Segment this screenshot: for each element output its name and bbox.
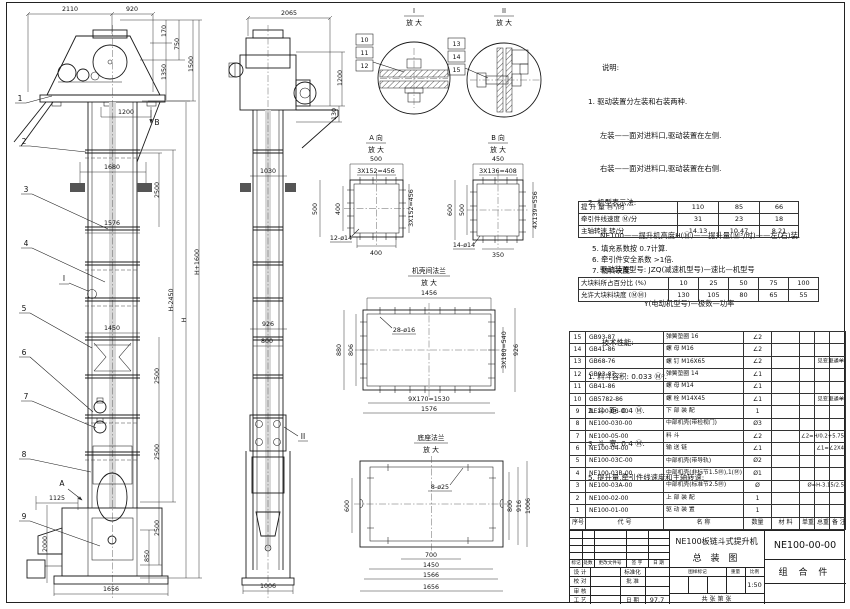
dim-a-holes: 12-ø14 — [330, 235, 352, 242]
parts-row: 1NE100-01-00驱 动 装 置1 — [570, 505, 846, 517]
detail-II: II 放 大 13 14 15 — [448, 7, 541, 117]
note-line: 6. 牵引件安全系数 >1倍. — [592, 254, 832, 265]
sheet-count: 共 张 第 张 — [669, 593, 764, 604]
dim-170: 170 — [161, 25, 168, 37]
dim-f-1456: 1456 — [421, 290, 437, 297]
parts-row: 12GB93-87弹簧垫圈 14∠1 — [570, 369, 846, 381]
drawing-number: NE100-00-00 — [764, 531, 846, 559]
dim-f-1530: 9X170=1530 — [408, 396, 450, 403]
col-qty: 数量 — [744, 517, 772, 529]
dim-1576: 1576 — [104, 220, 120, 227]
dim-f-806: 806 — [348, 344, 355, 356]
dim-b-350-bottom: 350 — [492, 252, 504, 259]
dim-g-1656: 1656 — [423, 584, 439, 591]
balloon-8: 8 — [22, 450, 27, 459]
balloon-10: 10 — [360, 37, 368, 44]
dim-1500: 1500 — [188, 56, 195, 72]
dim-g-holes: 8-ø25 — [431, 484, 449, 491]
col-material: 材 料 — [772, 517, 800, 529]
dim-926-side: 926 — [262, 321, 274, 328]
table-row: 主轴转速 转/分 14.13 10.47 8.21 — [579, 226, 799, 238]
dim-h-minus-2450: H-2450 — [168, 288, 175, 311]
drawing-sheet: 2110 920 170 750 1350 1500 1200 1680 250… — [0, 0, 850, 609]
balloon-1: 1 — [18, 94, 23, 103]
dim-b-holes: 14-ø14 — [453, 242, 475, 249]
stamp-label: 图样标记 — [669, 567, 726, 576]
table-row: 允许大块料块度 (ⓂⓂ) 130 105 80 65 55 — [579, 290, 819, 302]
drawing-subtitle: 总 装 图 — [669, 549, 764, 565]
dim-2500-a: 2500 — [154, 182, 161, 198]
parts-row: 3NE100-03A-00中部机壳(标准节2.5Ⓜ)ØØ=H-3.15/2.5 — [570, 480, 846, 492]
dim-130: 130 — [331, 108, 338, 120]
dim-2500-c: 2500 — [154, 444, 161, 460]
rev-col-docno: 更改文件号 — [594, 559, 626, 567]
drawing-title: NE100板链斗式提升机 — [669, 533, 764, 549]
sig-audit: 审 核 — [570, 586, 590, 595]
note-line: 1. 驱动装置分左装和右装两种. — [588, 96, 844, 107]
parts-row: 6NE100-04-00输 送 链∠1∠1=∠2X4 — [570, 443, 846, 455]
detail-marker-I: I — [63, 274, 65, 283]
sig-approve: 批 准 — [620, 576, 645, 586]
view-A-label: A 向 — [369, 133, 383, 142]
casing-flange-view: 机壳间法兰 放 大 1456 28-ø16 880 806 3X180=540 … — [336, 266, 520, 413]
balloon-12: 12 — [360, 63, 368, 70]
dim-g-916: 916 — [516, 500, 523, 512]
balloon-13: 13 — [452, 41, 460, 48]
base-flange-sublabel: 放 大 — [423, 445, 439, 454]
col-name: 名 称 — [664, 517, 744, 529]
balloon-11: 11 — [360, 50, 368, 57]
rev-col-count: 处数 — [582, 559, 594, 567]
balloon-3: 3 — [24, 185, 29, 194]
dim-f-540: 3X180=540 — [501, 331, 508, 369]
dim-b-556-right: 4X139=556 — [532, 191, 539, 229]
note-line: 7. 物料块度: — [592, 265, 832, 276]
dim-b-600-left: 600 — [447, 204, 454, 216]
dim-1006: 1006 — [260, 583, 276, 590]
casing-flange-sublabel: 放 大 — [421, 278, 437, 287]
view-B-label: B 向 — [491, 133, 505, 142]
dim-a-400-bottom: 400 — [370, 250, 382, 257]
balloon-5: 5 — [22, 304, 27, 313]
base-flange-label: 底座法兰 — [417, 433, 444, 442]
rev-col-sign: 签 字 — [626, 559, 648, 567]
dim-750: 750 — [174, 38, 181, 50]
dim-2500-b: 2500 — [154, 368, 161, 384]
dim-1125: 1125 — [49, 495, 65, 502]
dim-1200-side: 1200 — [337, 70, 344, 86]
parts-row: 15GB93-87弹簧垫圈 16∠2 — [570, 332, 846, 344]
dim-h-plus-1600: H+1600 — [194, 249, 201, 275]
sig-standardization: 标准化 — [620, 567, 645, 576]
balloon-9: 9 — [22, 512, 27, 521]
parts-row: 13GB68-76螺 钉 M16X65∠2见变更通单 — [570, 356, 846, 368]
view-marker-B: B — [154, 118, 159, 127]
parts-row: 9NE100-06-00下 部 装 配1 — [570, 406, 846, 418]
detail-I-sublabel: 放 大 — [406, 18, 422, 27]
detail-marker-II: II — [301, 432, 305, 441]
dim-g-600: 600 — [344, 500, 351, 512]
table-row: 大块料所占百分比 (%) 10 25 50 75 100 — [579, 278, 819, 290]
detail-I-label: I — [413, 7, 415, 15]
dim-g-1566: 1566 — [423, 572, 439, 579]
lump-size-table: 大块料所占百分比 (%) 10 25 50 75 100 允许大块料块度 (ⓂⓂ… — [578, 277, 819, 302]
view-A-sublabel: 放 大 — [368, 145, 384, 154]
dim-800-side: 800 — [261, 338, 273, 345]
col-remark: 备 注 — [830, 517, 846, 529]
col-code: 代 号 — [586, 517, 664, 529]
side-view-dimensions: 2065 1200 130 1030 926 800 1006 II — [243, 10, 345, 594]
sig-design: 设 计 — [570, 567, 590, 576]
parts-row: 4NE100-03B-00中部机壳(非标节1.5Ⓜ),1(Ⓜ)Ø1 — [570, 468, 846, 480]
side-view — [229, 25, 338, 598]
part-class: 组 合 件 — [764, 559, 846, 583]
dim-2065: 2065 — [281, 10, 297, 17]
dim-1680: 1680 — [104, 164, 120, 171]
rev-col-date: 日 期 — [648, 559, 669, 567]
dim-b-450-top: 450 — [492, 156, 504, 163]
rev-col-mark: 标记 — [570, 559, 582, 567]
parts-row: 8NE100-030-00中部机壳(带检视门)Ø3 — [570, 418, 846, 430]
dim-920: 920 — [126, 6, 138, 13]
dim-1656: 1656 — [103, 586, 119, 593]
dim-f-1576: 1576 — [421, 406, 437, 413]
dim-1200: 1200 — [118, 109, 134, 116]
casing-flange-label: 机壳间法兰 — [412, 266, 446, 275]
detail-I: I 放 大 10 11 12 — [356, 7, 450, 114]
dim-f-880: 880 — [336, 344, 343, 356]
dim-1450: 1450 — [104, 325, 120, 332]
dim-2110: 2110 — [62, 6, 78, 13]
dim-a-456-right: 3X152=456 — [408, 189, 415, 227]
balloon-14: 14 — [452, 54, 460, 61]
view-B-sublabel: 放 大 — [490, 145, 506, 154]
note-line: 5. 填充系数按 0.7计算. — [592, 243, 832, 254]
dim-f-holes: 28-ø16 — [393, 327, 415, 334]
dim-g-700: 700 — [425, 552, 437, 559]
dim-1350: 1350 — [161, 64, 168, 80]
dim-a-400-left: 400 — [335, 203, 342, 215]
parts-row: 2NE100-02-00上 部 装 配1 — [570, 492, 846, 504]
lift-capacity-table: 提 升 量 Ⓜ³/时 110 85 66 牵引件线速度 Ⓜ/分 31 23 18… — [578, 201, 799, 238]
sig-date-label: 日 期 — [620, 595, 645, 604]
dim-2500-d: 2500 — [154, 520, 161, 536]
parts-list: 15GB93-87弹簧垫圈 16∠2 14GB41-86螺 母 M16∠2 13… — [569, 331, 846, 530]
detail-II-sublabel: 放 大 — [496, 18, 512, 27]
balloon-4: 4 — [24, 239, 29, 248]
base-flange-view: 底座法兰 放 大 8-ø25 600 800 916 1006 700 1450… — [344, 433, 532, 591]
dim-2000: 2000 — [42, 536, 49, 552]
parts-row: 14GB41-86螺 母 M16∠2 — [570, 344, 846, 356]
col-total-weight: 总重 — [815, 517, 830, 529]
dim-g-1006: 1006 — [525, 498, 532, 514]
title-block: 标记 处数 更改文件号 签 字 日 期 设 计 标准化 校 对 批 准 审 核 … — [569, 530, 845, 603]
balloon-7: 7 — [24, 392, 29, 401]
dim-h: H — [181, 317, 188, 322]
notes-heading: 说明: — [588, 62, 844, 73]
dim-850: 850 — [144, 550, 151, 562]
col-unit-weight: 单重 — [800, 517, 815, 529]
dim-a-500-left: 500 — [312, 203, 319, 215]
date-value: 97.7 — [645, 595, 669, 604]
balloon-15: 15 — [452, 67, 460, 74]
dim-b-408-top: 3X136=408 — [479, 168, 517, 175]
parts-row: 11GB41-86螺 母 M14∠1 — [570, 381, 846, 393]
table-row: 牵引件线速度 Ⓜ/分 31 23 18 — [579, 214, 799, 226]
dim-b-500-left: 500 — [459, 204, 466, 216]
dim-a-456-top: 3X152=456 — [357, 168, 395, 175]
parts-row: 7NE100-05-00料 斗∠2∠2=H/0.2+5.75 — [570, 431, 846, 443]
scale-value: 1:50 — [745, 576, 764, 593]
note-line: 左装——面对进料口,驱动装置在左侧. — [588, 130, 844, 141]
sig-process: 工 艺 — [570, 595, 590, 604]
weight-label: 重量 — [726, 567, 745, 576]
dim-1030: 1030 — [260, 168, 276, 175]
view-B: B 向 放 大 450 3X136=408 600 500 4X139=556 … — [447, 133, 539, 259]
parts-row: 10GB5782-86螺 栓 M14X45∠1见变更通单 — [570, 393, 846, 405]
balloon-6: 6 — [22, 348, 27, 357]
balloon-2: 2 — [22, 137, 27, 146]
dim-f-926: 926 — [513, 344, 520, 356]
dim-g-800: 800 — [507, 500, 514, 512]
col-no: 序号 — [570, 517, 586, 529]
view-marker-A: A — [59, 479, 65, 488]
scale-label: 比例 — [745, 567, 764, 576]
view-A: A 向 放 大 500 3X152=456 500 400 3X152=456 … — [312, 133, 415, 257]
detail-II-label: II — [502, 7, 506, 15]
sig-audit-right — [620, 586, 645, 595]
dim-g-1450: 1450 — [423, 562, 439, 569]
note-line: 右装——面对进料口,驱动装置在右侧. — [588, 163, 844, 174]
post-notes: 5. 填充系数按 0.7计算. 6. 牵引件安全系数 >1倍. 7. 物料块度: — [592, 243, 832, 276]
front-view-balloons: 1 2 3 4 5 6 7 8 9 I B A — [15, 94, 160, 546]
parts-header-row: 序号 代 号 名 称 数量 材 料 单重 总重 备 注 — [570, 517, 846, 529]
table-row: 提 升 量 Ⓜ³/时 110 85 66 — [579, 202, 799, 214]
dim-a-500-top: 500 — [370, 156, 382, 163]
front-view — [14, 25, 168, 598]
parts-row: 5NE100-03C-00中部机壳(带导轨)Ø2 — [570, 455, 846, 467]
sig-check: 校 对 — [570, 576, 590, 586]
